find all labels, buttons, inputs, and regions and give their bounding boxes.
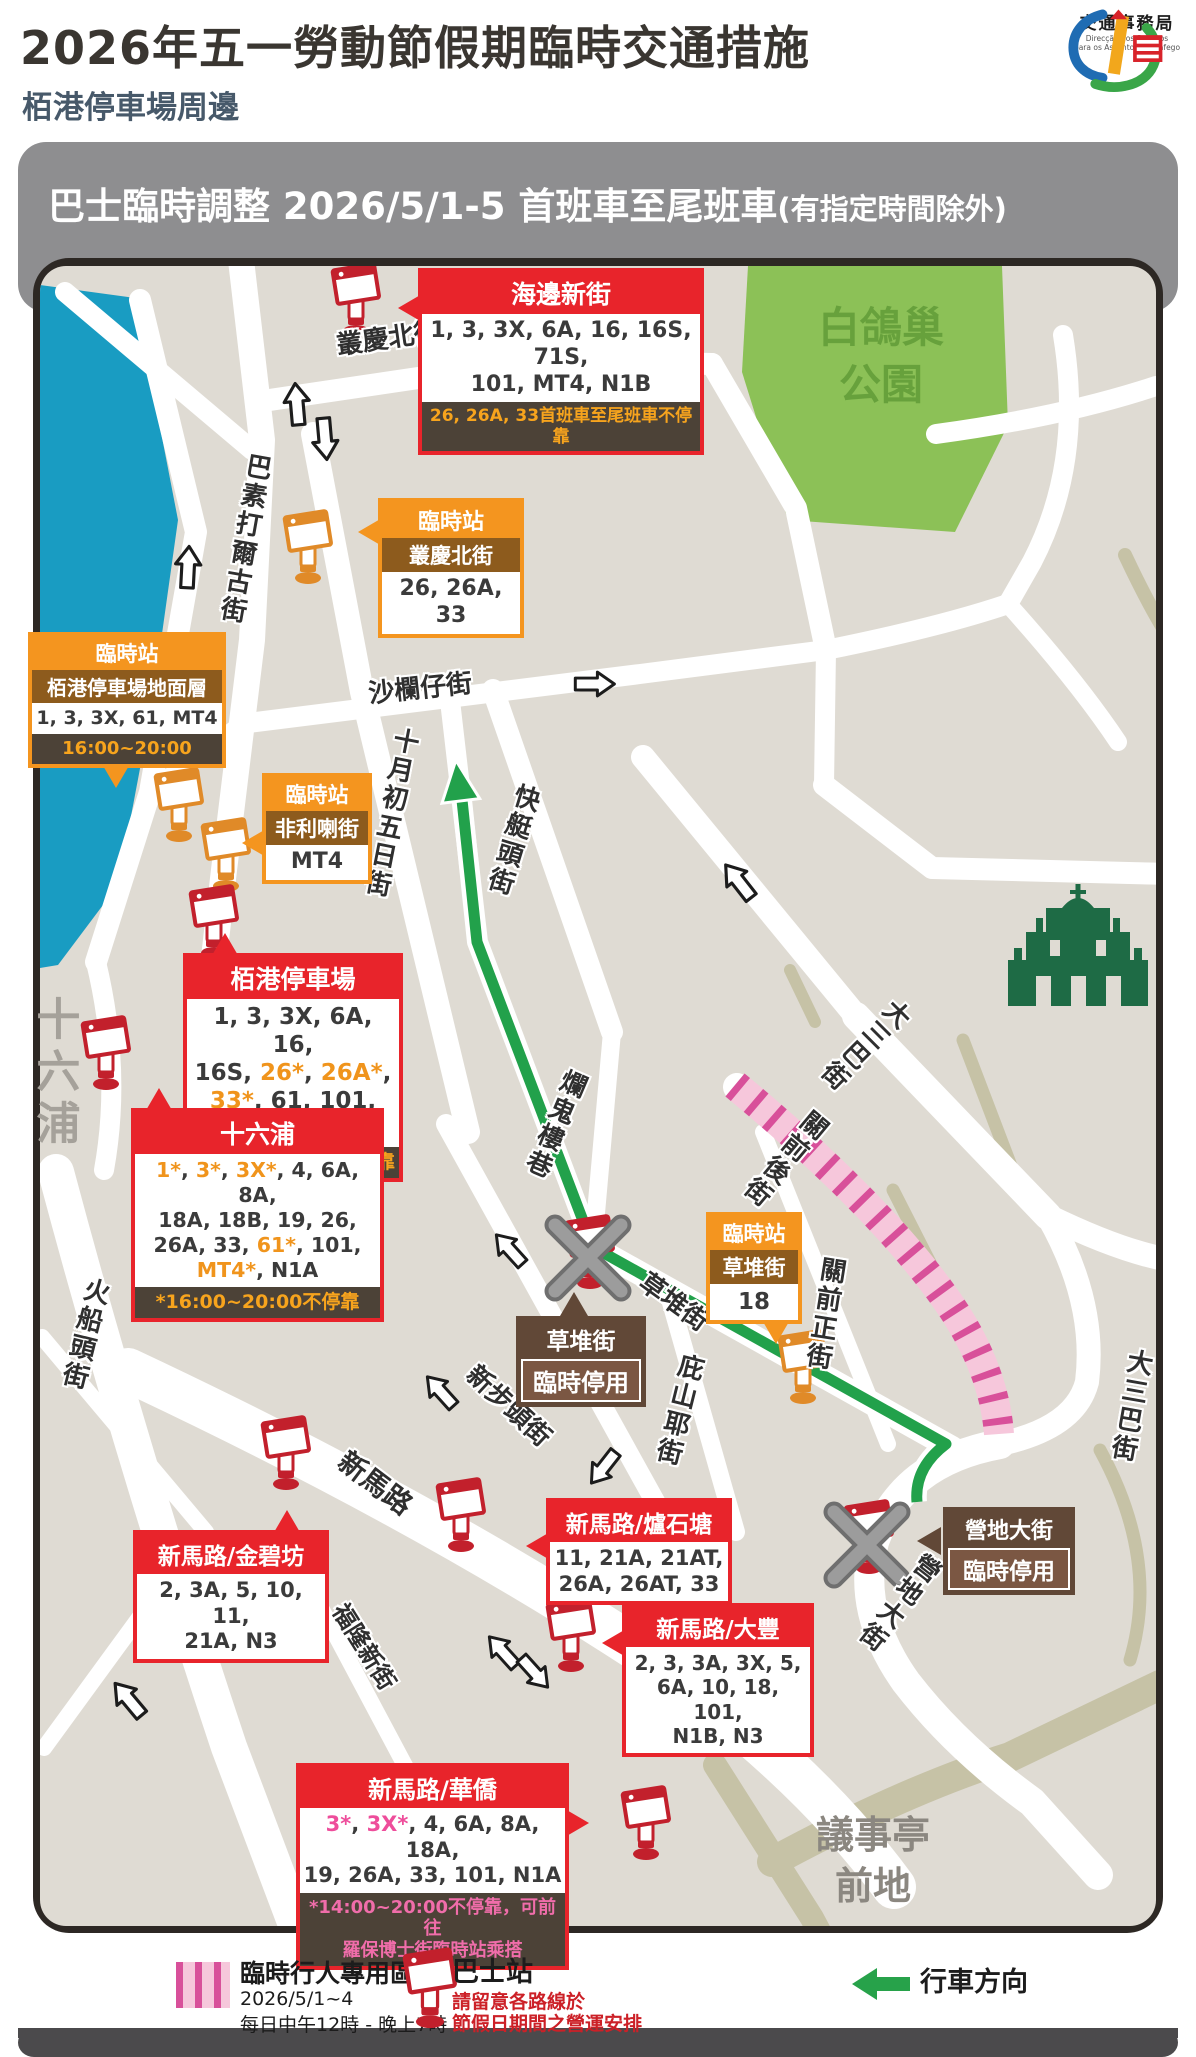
stopbox-haibian: 海邊新街 1, 3, 3X, 6A, 16, 16S, 71S, 101, MT… <box>418 268 704 455</box>
area-label-shiliupu: 十六浦 <box>24 996 83 1152</box>
stopbox-huaqiao-title: 新馬路/華僑 <box>300 1767 565 1808</box>
stopbox-dimianceng: 臨時站 栢港停車場地面層 1, 3, 3X, 61, MT4 16:00~20:… <box>28 632 226 768</box>
poster: 2026年五一勞動節假期臨時交通措施 栢港停車場周邊 交通事務局 Direcçã… <box>0 0 1196 2057</box>
stopbox-jinbifang: 新馬路/金碧坊 2, 3A, 5, 10, 11, 21A, N3 <box>133 1530 329 1663</box>
stopbox-feilila-title: 非利喇街 <box>266 811 368 845</box>
legend-bus-stop-label: 巴士站 <box>452 1950 533 1989</box>
stopbox-congqing: 臨時站 叢慶北街 26, 26A, 33 <box>378 498 524 638</box>
stopbox-lushitang-routes: 11, 21A, 21AT, 26A, 26AT, 33 <box>550 1542 728 1601</box>
stopbox-dimianceng-note: 16:00~20:00 <box>32 734 222 764</box>
stopbox-shiliupu-title: 十六浦 <box>135 1112 380 1154</box>
stopbox-shiliupu: 十六浦 1*, 3*, 3X*, 4, 6A, 8A, 18A, 18B, 19… <box>131 1108 384 1322</box>
stopbox-haibian-title: 海邊新街 <box>422 272 700 314</box>
stopbox-haibian-routes: 1, 3, 3X, 6A, 16, 16S, 71S, 101, MT4, N1… <box>422 314 700 402</box>
stopbox-congqing-routes: 26, 26A, 33 <box>382 572 520 634</box>
stopbox-huaqiao: 新馬路/華僑 3*, 3X*, 4, 6A, 8A, 18A, 19, 26A,… <box>296 1763 569 1970</box>
stopbox-caodui-closed-status: 臨時停用 <box>521 1359 641 1402</box>
stopbox-yingdi-closed: 營地大街 臨時停用 <box>943 1507 1075 1595</box>
stopbox-yingdi-closed-status: 臨時停用 <box>948 1548 1070 1590</box>
legend-direction-label: 行車方向 <box>920 1960 1028 1999</box>
area-label-park: 白鴿巢 公園 <box>786 300 976 413</box>
legend-bus-stop-note2: 節假日期間之營運安排 <box>452 2009 642 2036</box>
banner-main: 巴士臨時調整 2026/5/1-5 首班車至尾班車 <box>48 185 777 228</box>
stopbox-dafeng-title: 新馬路/大豐 <box>626 1607 810 1647</box>
stopbox-caodui-closed: 草堆街 臨時停用 <box>516 1316 646 1407</box>
stopbox-caodui-temp: 臨時站 草堆街 18 <box>706 1212 802 1324</box>
stopbox-shiliupu-routes: 1*, 3*, 3X*, 4, 6A, 8A, 18A, 18B, 19, 26… <box>135 1154 380 1287</box>
banner-note: (有指定時間除外) <box>777 192 1007 226</box>
stopbox-feilila-routes: MT4 <box>266 845 368 880</box>
stopbox-dafeng-routes: 2, 3, 3A, 3X, 5, 6A, 10, 18, 101, N1B, N… <box>626 1647 810 1753</box>
legend-pedestrian-label: 臨時行人專用區 <box>240 1954 415 1990</box>
stopbox-feilila: 臨時站 非利喇街 MT4 <box>262 773 372 884</box>
stopbox-yingdi-closed-title: 營地大街 <box>948 1512 1070 1548</box>
stopbox-jinbifang-title: 新馬路/金碧坊 <box>137 1534 325 1574</box>
stopbox-feilila-tag: 臨時站 <box>266 777 368 811</box>
legend-pedestrian-dates: 2026/5/1~4 <box>240 1988 353 2010</box>
banner: 巴士臨時調整 2026/5/1-5 首班車至尾班車(有指定時間除外) <box>48 176 1007 230</box>
stopbox-huaqiao-routes: 3*, 3X*, 4, 6A, 8A, 18A, 19, 26A, 33, 10… <box>300 1808 565 1893</box>
legend-direction-arrow-icon <box>852 1968 910 2000</box>
stopbox-jinbifang-routes: 2, 3A, 5, 10, 11, 21A, N3 <box>137 1574 325 1659</box>
stopbox-caodui-closed-title: 草堆街 <box>521 1321 641 1359</box>
stopbox-dafeng: 新馬路/大豐 2, 3, 3A, 3X, 5, 6A, 10, 18, 101,… <box>622 1603 814 1757</box>
stopbox-lushitang: 新馬路/爐石塘 11, 21A, 21AT, 26A, 26AT, 33 <box>546 1498 732 1605</box>
stopbox-congqing-title: 叢慶北街 <box>382 538 520 572</box>
stopbox-dimianceng-routes: 1, 3, 3X, 61, MT4 <box>32 703 222 734</box>
stopbox-caodui-temp-title: 草堆街 <box>710 1250 798 1284</box>
stopbox-congqing-tag: 臨時站 <box>382 502 520 538</box>
area-label-senado: 議事亭 前地 <box>768 1810 978 1913</box>
stopbox-shiliupu-note: *16:00~20:00不停靠 <box>135 1287 380 1318</box>
stopbox-bokong-title: 栢港停車場 <box>187 957 399 999</box>
legend-pedestrian-swatch <box>176 1962 230 2008</box>
stopbox-caodui-temp-routes: 18 <box>710 1284 798 1320</box>
stopbox-caodui-temp-tag: 臨時站 <box>710 1216 798 1250</box>
stopbox-lushitang-title: 新馬路/爐石塘 <box>550 1502 728 1542</box>
stopbox-dimianceng-tag: 臨時站 <box>32 636 222 670</box>
stopbox-dimianceng-title: 栢港停車場地面層 <box>32 670 222 703</box>
stopbox-haibian-note: 26, 26A, 33首班車至尾班車不停靠 <box>422 402 700 451</box>
